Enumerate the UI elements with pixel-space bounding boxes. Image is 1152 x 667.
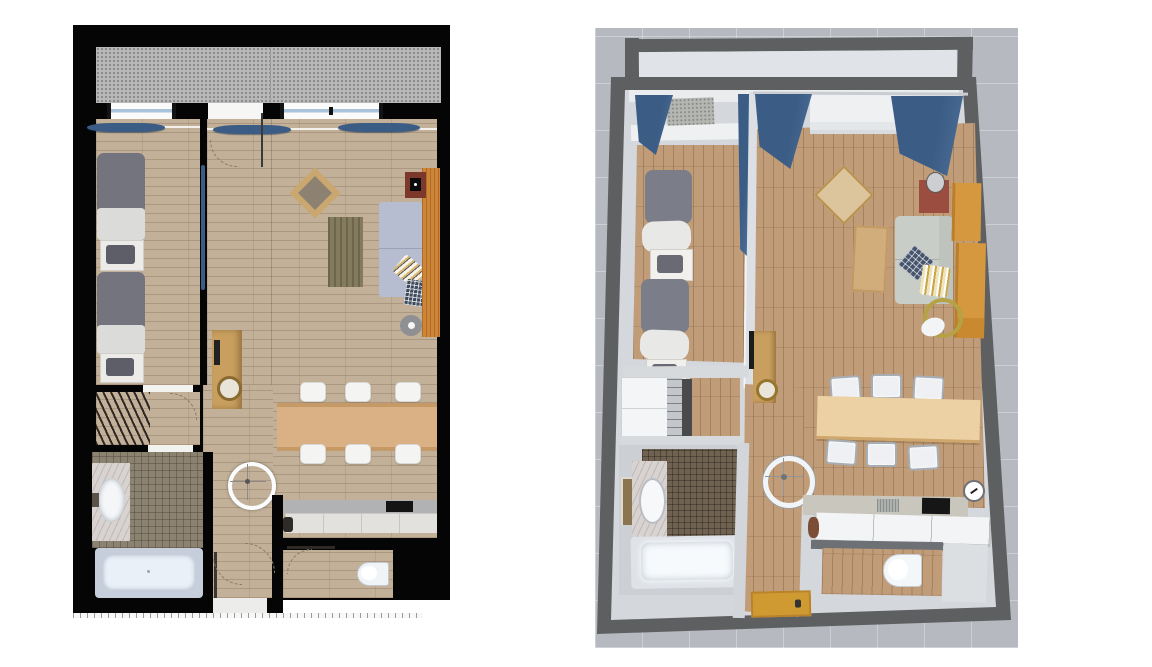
curtain-bedroom[interactable] (87, 123, 165, 132)
shelf-unit-upper-3d[interactable] (952, 183, 982, 241)
mirror-knob (756, 379, 778, 401)
dining-table[interactable] (277, 403, 437, 451)
sofa-3d[interactable] (895, 216, 953, 304)
closet-dark-gap (682, 379, 692, 436)
bathroom-door-gap (148, 445, 193, 452)
bathtub-3d[interactable] (631, 535, 744, 589)
balcony-divider (270, 47, 271, 103)
floor-lamp[interactable] (400, 315, 422, 336)
bathtub[interactable] (95, 548, 203, 598)
scale-tick-strip (73, 613, 423, 618)
console-table[interactable] (212, 330, 242, 409)
door-handle-3d (795, 599, 801, 607)
bathtub-drain (147, 570, 150, 573)
dining-chair-3d[interactable] (871, 374, 902, 399)
wall-mirror-3d[interactable] (621, 477, 632, 525)
clothes-rack[interactable] (96, 392, 150, 445)
wc-wall-right-3d (942, 543, 988, 603)
vanity-counter[interactable] (92, 463, 130, 541)
area-rug[interactable] (328, 217, 363, 287)
bed-linen (639, 329, 689, 361)
dining-chair[interactable] (301, 383, 325, 401)
cooktop[interactable] (386, 501, 413, 512)
dining-chair-3d[interactable] (866, 442, 897, 467)
dining-chair[interactable] (346, 445, 370, 463)
dining-chair-3d[interactable] (825, 439, 858, 466)
washbasin (98, 478, 125, 522)
wardrobe-floor-3d (690, 378, 740, 437)
bed-linen (97, 325, 145, 354)
bed-linen (641, 220, 691, 253)
curtain-living-left[interactable] (213, 125, 291, 134)
single-bed-2[interactable] (97, 272, 145, 381)
console-table-3d[interactable] (753, 331, 776, 403)
sofa-seam (379, 248, 422, 249)
entry-door-mat-3d[interactable] (751, 590, 812, 618)
round-mirror (217, 376, 242, 401)
cooktop-3d[interactable] (922, 498, 950, 514)
closet-upper[interactable] (621, 377, 669, 409)
bed-pillow (106, 358, 134, 376)
dining-chair[interactable] (346, 383, 370, 401)
bedroom-window[interactable] (107, 103, 176, 119)
pillow-gold-stripe (919, 264, 951, 298)
console-handle (214, 340, 220, 365)
bed-duvet (97, 153, 145, 210)
wall-bath-right (203, 452, 213, 598)
kettle[interactable] (283, 517, 293, 532)
floor-plan-2d[interactable] (73, 25, 450, 618)
faucet (92, 493, 99, 507)
toilet[interactable] (357, 562, 389, 586)
dining-chair[interactable] (396, 383, 420, 401)
dining-table-3d[interactable] (816, 396, 980, 443)
fireplace-dot (414, 183, 417, 186)
curtain-living-right[interactable] (338, 123, 420, 132)
side-table-top (298, 176, 332, 210)
floor-lamp-bulb (408, 322, 415, 329)
sofa[interactable] (379, 202, 422, 297)
ceiling-spotlight[interactable] (228, 462, 276, 510)
kitchen-sink-3d (877, 499, 899, 512)
kitchen-counter[interactable] (283, 500, 437, 513)
living-window[interactable] (280, 103, 383, 119)
floorplan-views (0, 0, 1152, 667)
bed-linen (97, 208, 145, 240)
fireplace[interactable] (405, 172, 426, 198)
fireplace-3d[interactable] (919, 180, 949, 213)
closet-lower[interactable] (621, 408, 669, 439)
sliding-door-blue[interactable] (201, 165, 205, 290)
wardrobe-door-gap (143, 385, 193, 392)
spotlight-center (781, 474, 787, 480)
dining-chair[interactable] (301, 445, 325, 463)
dining-chair[interactable] (396, 445, 420, 463)
jug-3d (808, 517, 819, 538)
single-bed-1[interactable] (97, 153, 145, 269)
floor-plan-3d[interactable] (595, 28, 1018, 648)
bed-duvet (645, 170, 692, 224)
toilet-seat (361, 566, 377, 580)
table-lamp (926, 172, 945, 193)
closet-shelf-unit[interactable] (667, 378, 682, 436)
bed-duvet (97, 272, 145, 327)
coffee-table-3d[interactable] (851, 225, 888, 293)
balcony-door-leaf[interactable] (261, 113, 263, 167)
dining-chair-3d[interactable] (907, 444, 939, 471)
washbasin-3d (639, 478, 666, 524)
clock-hand (970, 488, 978, 494)
kitchen-cabinets[interactable] (285, 513, 437, 533)
gold-floor-lamp-3d[interactable] (923, 298, 963, 338)
bed-pillow (106, 245, 135, 264)
wc-floor-3d (822, 548, 943, 596)
balcony-door-opening[interactable] (208, 103, 263, 119)
spotlight-center (245, 479, 250, 484)
balcony-mat-3d (667, 97, 715, 126)
balcony-floor (96, 47, 441, 103)
bed-3d-1[interactable] (642, 170, 692, 282)
console-dark-edge (749, 331, 754, 369)
nightstand-cushion (657, 255, 683, 273)
toilet-3d[interactable] (883, 554, 922, 587)
window-mullion (329, 107, 333, 115)
toilet-seat-3d (888, 559, 908, 580)
bathtub-basin-3d (641, 541, 734, 581)
vanity-3d[interactable] (632, 461, 667, 539)
wall-clock-3d (963, 480, 985, 502)
bed-duvet (641, 279, 689, 333)
